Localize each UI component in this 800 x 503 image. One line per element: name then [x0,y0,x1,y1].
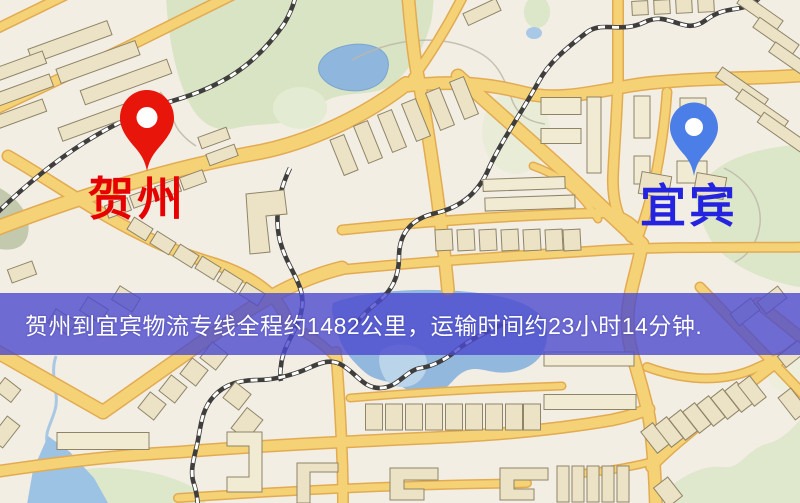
origin-city-label: 贺州 [88,176,186,222]
route-info-banner: 贺州到宜宾物流专线全程约1482公里，运输时间约23小时14分钟. [0,293,800,355]
map-canvas [0,0,800,503]
origin-pin-icon [117,87,177,177]
route-info-text: 贺州到宜宾物流专线全程约1482公里，运输时间约23小时14分钟. [0,307,702,341]
destination-pin-icon [667,100,721,182]
logistics-route-map: 贺州到宜宾物流专线全程约1482公里，运输时间约23小时14分钟. 贺州 宜宾 [0,0,800,503]
destination-city-label: 宜宾 [640,183,738,229]
